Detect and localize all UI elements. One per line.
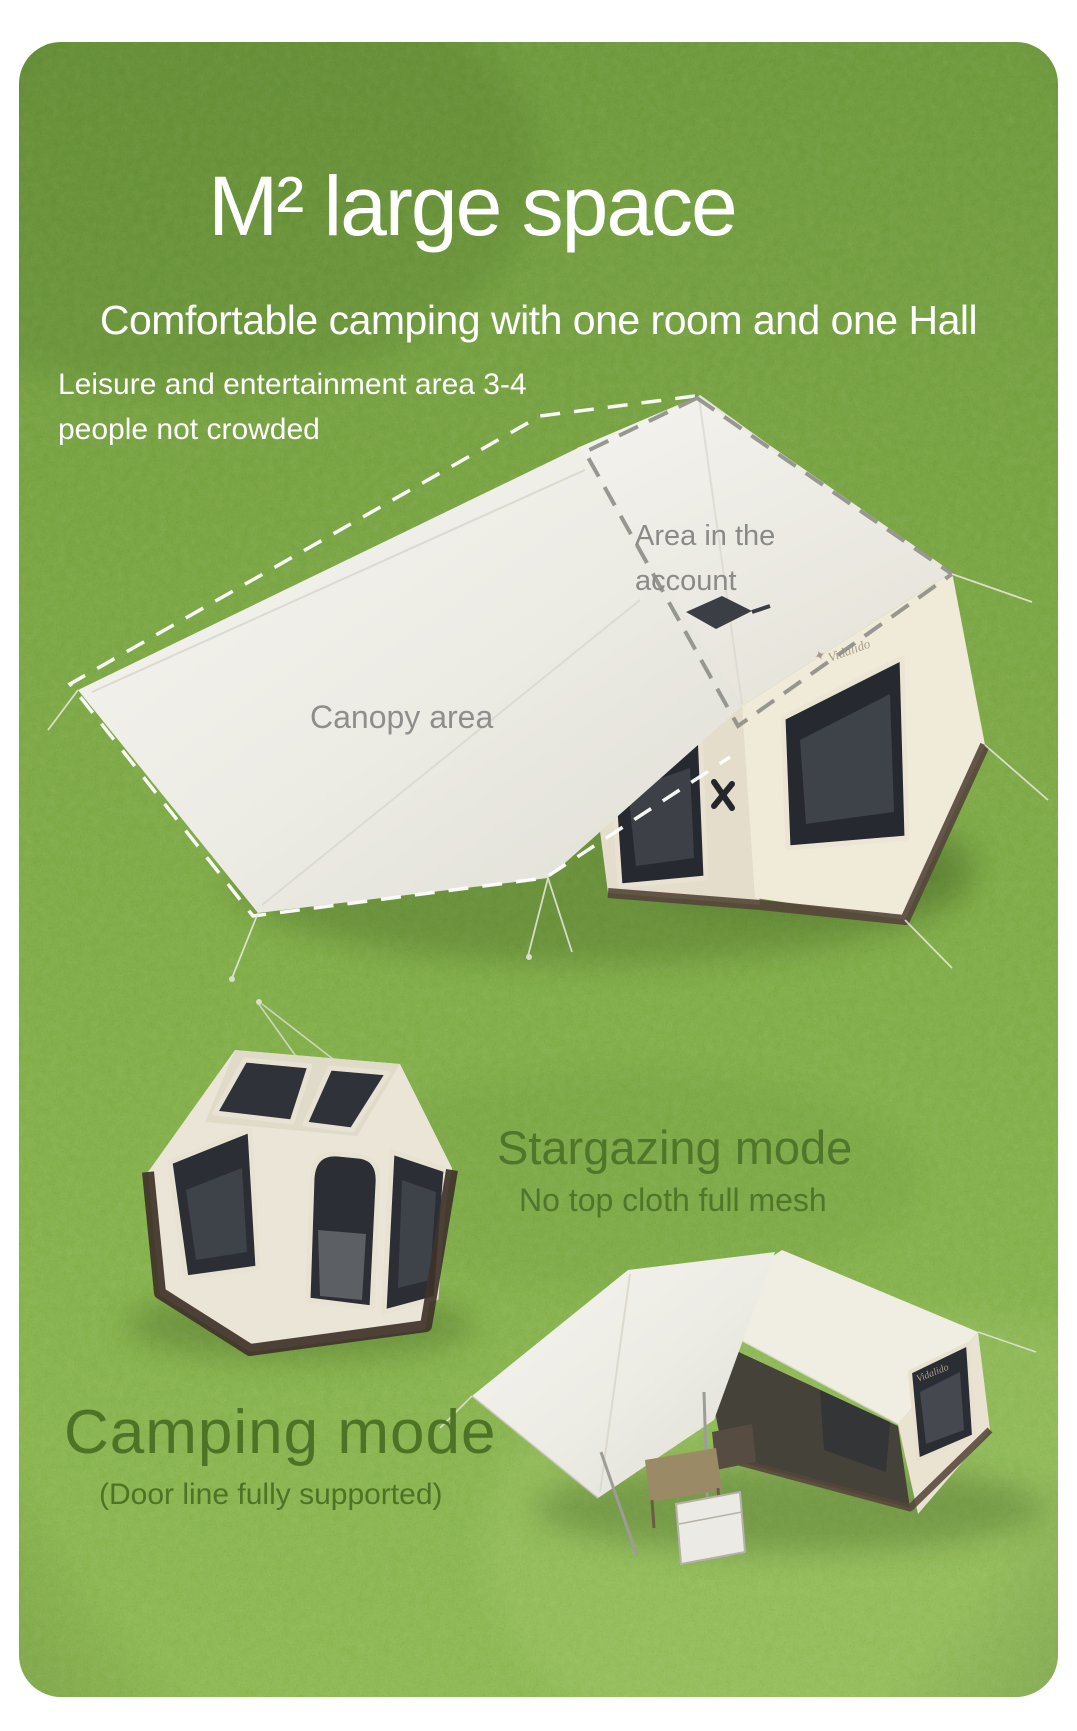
hero-note-line1: Leisure and entertainment area 3-4 [58, 362, 527, 407]
account-area-label-line1: Area in the [635, 514, 775, 559]
camp-chair [712, 1424, 756, 1470]
camp-box [676, 1492, 745, 1564]
stargazing-mode-subtitle: No top cloth full mesh [519, 1184, 827, 1216]
page-subtitle: Comfortable camping with one room and on… [0, 300, 1077, 341]
hero-note: Leisure and entertainment area 3-4 peopl… [58, 362, 527, 452]
page-title: M² large space [0, 164, 944, 248]
tent-product-infographic: ✦ Vidalido [0, 0, 1077, 1731]
account-area-label-line2: account [635, 559, 775, 604]
canopy-area-label: Canopy area [310, 701, 493, 733]
account-area-label: Area in the account [635, 514, 775, 604]
scene-illustration: ✦ Vidalido [0, 0, 1077, 1731]
camping-mode-title: Camping mode [64, 1402, 496, 1464]
camping-mode-subtitle: (Door line fully supported) [99, 1480, 443, 1510]
stargazing-mode-title: Stargazing mode [497, 1124, 852, 1171]
hero-note-line2: people not crowded [58, 407, 527, 452]
